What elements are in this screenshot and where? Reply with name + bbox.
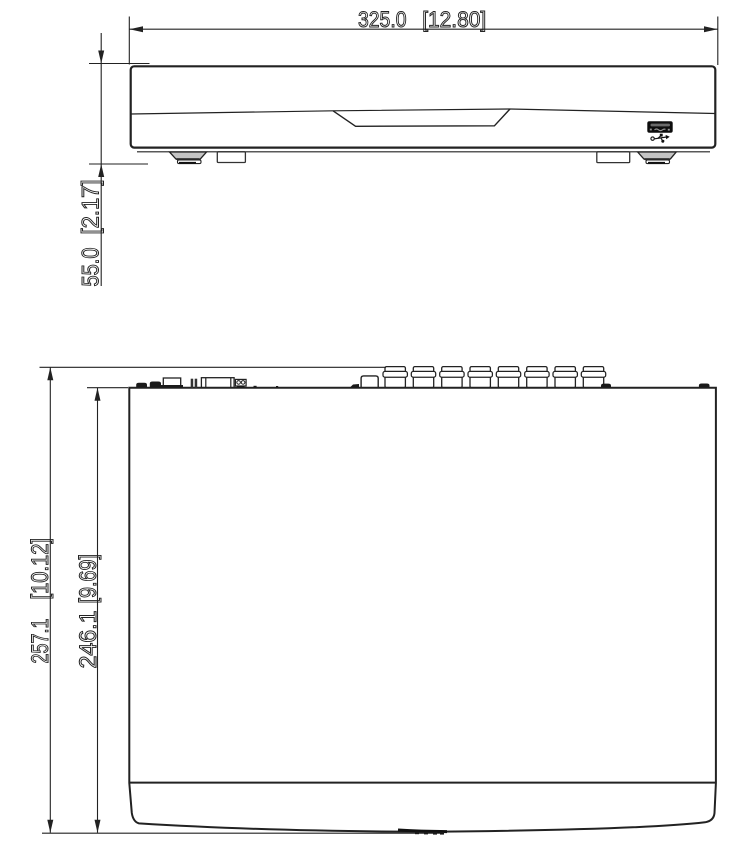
svg-text:257.1: 257.1 — [27, 619, 54, 664]
svg-text:246.1: 246.1 — [75, 611, 102, 669]
svg-text:55.0: 55.0 — [78, 248, 105, 287]
svg-text:[2.17]: [2.17] — [78, 180, 105, 235]
svg-text:[9.69]: [9.69] — [75, 554, 102, 604]
svg-text:[12.80]: [12.80] — [422, 7, 486, 32]
svg-text:[10.12]: [10.12] — [27, 538, 54, 600]
svg-text:325.0: 325.0 — [358, 7, 407, 32]
